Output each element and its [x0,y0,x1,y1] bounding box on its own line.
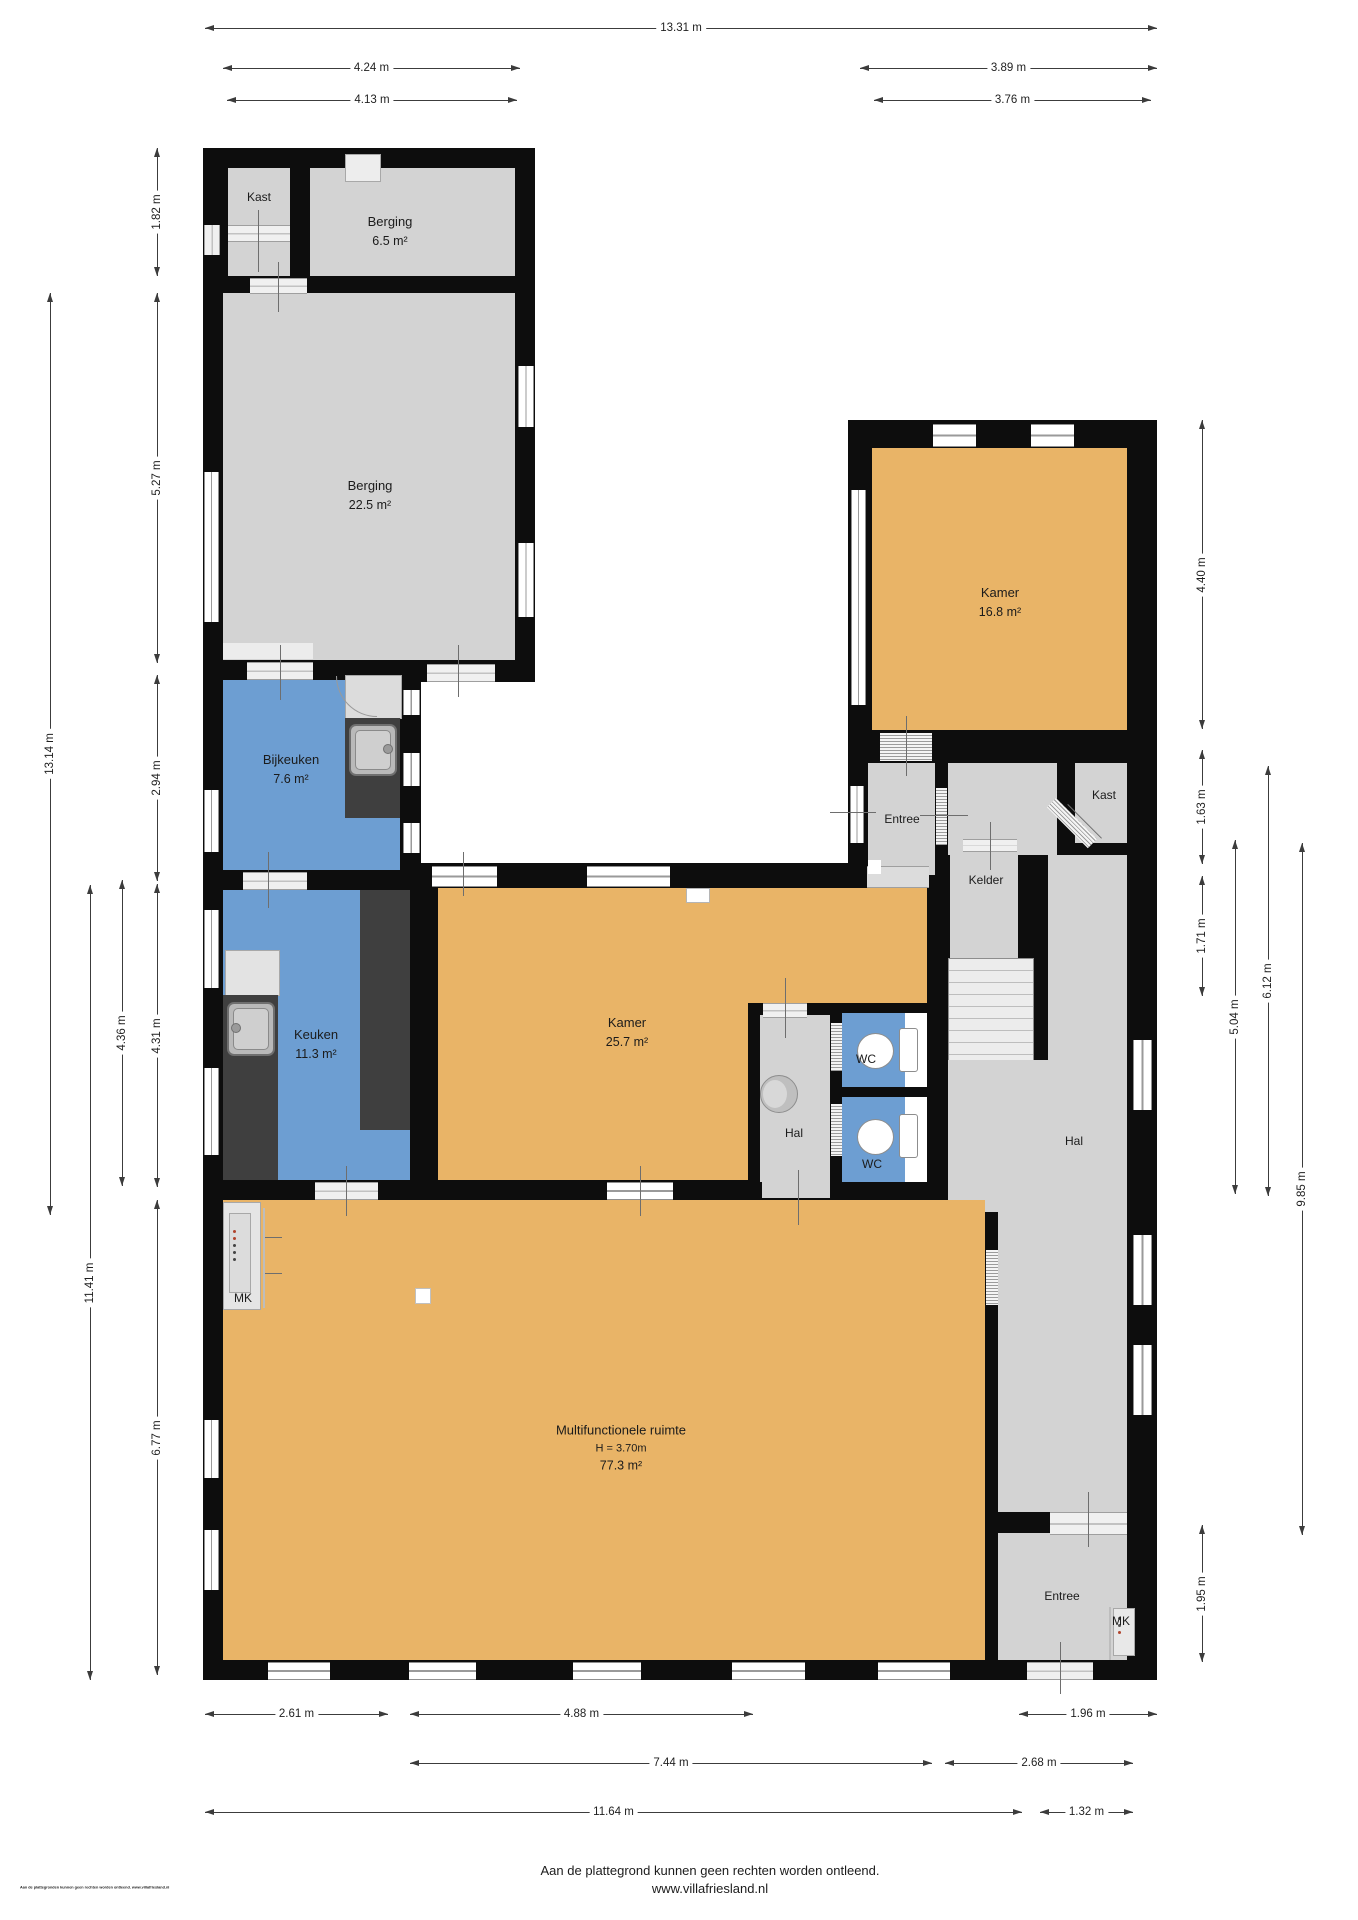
wall-niche [345,154,381,182]
basin-icon [760,1075,798,1113]
toilet-icon [857,1119,894,1155]
appliance-icon [225,950,280,996]
window [204,1068,219,1155]
window-mark [830,812,876,813]
sink-icon [227,1002,275,1056]
window [403,823,420,853]
room-label-kast-topleft: Kast [247,188,271,206]
room-name: Kast [247,190,271,204]
room-label-wc-top: WC [856,1050,876,1068]
door-opening [762,1182,830,1198]
room-area: 25.7 m² [606,1032,648,1051]
room-name: Multifunctionele ruimte [556,1423,686,1438]
toilet-icon [899,1028,918,1072]
room-label-kast-right: Kast [1092,786,1116,804]
dimension-value: 1.71 m [1196,914,1208,957]
room-label-kamer-right: Kamer16.8 m² [979,583,1021,621]
room-label-multi: Multifunctionele ruimteH = 3.70m77.3 m² [556,1421,686,1476]
room-name: Kelder [969,873,1004,887]
toilet-icon [899,1114,918,1158]
room-name: Bijkeuken [263,752,319,767]
dimension-value: 4.40 m [1196,553,1208,596]
door-swing-line [640,1166,641,1216]
footer-line2: www.villafriesland.nl [652,1881,768,1896]
dimension-value: 2.61 m [275,1708,318,1720]
faucet-icon [383,744,393,754]
door-threshold [243,872,307,890]
room-hal-corridor-d [998,1212,1127,1512]
room-name: Keuken [294,1027,338,1042]
room-name: Entree [884,812,919,826]
dimension-value: 6.12 m [1262,959,1274,1002]
door [986,1250,998,1305]
dimension-value: 13.31 m [656,22,706,34]
meter-panel-inner [229,1213,251,1293]
basin-inner [763,1080,787,1108]
room-name: Berging [348,478,393,493]
room-area: 11.3 m² [294,1044,338,1063]
cupboard-mark [265,1237,282,1238]
dimension-value: 1.32 m [1065,1806,1108,1818]
door-swing-line [458,645,459,697]
room-hal-corridor-b [1048,855,1127,1060]
wall-notch [868,860,881,874]
dimension-value: 4.13 m [350,94,393,106]
window [204,472,219,622]
dimension-value: 3.89 m [987,62,1030,74]
room-name: Hal [1065,1134,1083,1148]
door-swing-line [1088,1492,1089,1547]
room-label-wc-bottom: WC [862,1155,882,1173]
dimension-value: 11.41 m [84,1258,96,1307]
cupboard-door-line [263,1208,265,1308]
window [933,424,976,447]
window-mark [463,852,464,896]
window [573,1662,641,1680]
cupboard-door-line [1109,1607,1111,1660]
room-area: 77.3 m² [556,1457,686,1476]
room-name: MK [234,1291,252,1305]
door-swing-line [278,262,279,312]
door-threshold [427,664,495,682]
door-swing-line [990,822,991,870]
room-kelder [950,850,1018,958]
room-kamer-main-upper [438,888,927,1003]
window [587,866,670,887]
window [850,786,864,843]
window [878,1662,950,1680]
room-berging-small [310,168,515,276]
dimension-value: 1.95 m [1196,1572,1208,1615]
room-area: 6.5 m² [368,231,413,250]
room-name: Kamer [608,1015,646,1030]
window [432,866,497,887]
door-swing-line [268,852,269,908]
window [204,1420,219,1478]
room-name: Berging [368,214,413,229]
window [409,1662,476,1680]
door-swing-line [906,716,907,776]
room-name: WC [862,1157,882,1171]
staircase-icon [948,958,1034,1062]
dimension-value: 1.82 m [151,190,163,233]
window [204,1530,219,1590]
dimension-value: 4.36 m [116,1011,128,1054]
dimension-value: 1.96 m [1066,1708,1109,1720]
dimension-value: 5.27 m [151,456,163,499]
door-swing-line [1060,1642,1061,1694]
window [1133,1345,1152,1415]
room-label-entree-bottom: Entree [1044,1587,1079,1605]
meter-dots [233,1226,236,1265]
dimension-value: 3.76 m [991,94,1034,106]
footer-micro: Aan de plattegronden kunnen geen rechten… [20,1885,169,1889]
room-name: Entree [1044,1589,1079,1603]
room-area: 7.6 m² [263,769,319,788]
door [831,1023,842,1071]
window [732,1662,805,1680]
room-label-kamer-main: Kamer25.7 m² [606,1013,648,1051]
window [403,753,420,786]
dimension-value: 7.44 m [649,1757,692,1769]
dimension-value: 9.85 m [1296,1167,1308,1210]
dimension-value: 2.68 m [1017,1757,1060,1769]
faucet-icon [231,1023,241,1033]
room-label-mk-left: MK [234,1289,252,1307]
room-label-berging-large: Berging22.5 m² [348,476,393,514]
dimension-value: 13.14 m [44,729,56,779]
room-label-mk-right: MK [1112,1612,1130,1630]
footer-website: www.villafriesland.nl [652,1881,768,1896]
floor-detail [415,1288,431,1304]
room-name: MK [1112,1614,1130,1628]
dimension-value: 1.63 m [1196,785,1208,828]
door-swing-line [785,978,786,1038]
window [1031,424,1074,447]
footer-line1: Aan de plattegrond kunnen geen rechten w… [541,1863,880,1878]
footer-micro-text: Aan de plattegronden kunnen geen rechten… [20,1885,169,1889]
window [518,366,534,427]
dimension-value: 6.77 m [151,1416,163,1459]
window [1133,1235,1152,1305]
room-label-hal-small: Hal [785,1124,803,1142]
room-name: Kast [1092,788,1116,802]
door-mark [920,815,968,816]
door [831,1104,842,1156]
floor-step [223,643,313,659]
dimension-value: 11.64 m [589,1806,638,1818]
window [851,490,866,705]
room-name: WC [856,1052,876,1066]
floorplan-canvas: Kast Berging6.5 m² Berging22.5 m² Kamer1… [0,0,1358,1920]
window [403,690,420,715]
door-threshold [204,225,220,255]
window [518,543,534,617]
door [936,788,947,845]
room-label-bijkeuken: Bijkeuken7.6 m² [263,750,319,788]
window [1133,1040,1152,1110]
window [268,1662,330,1680]
room-name: Kamer [981,585,1019,600]
dimension-value: 4.31 m [151,1014,163,1057]
room-hal-corridor-c [948,1060,1127,1212]
room-name: Hal [785,1126,803,1140]
room-area: 22.5 m² [348,495,393,514]
door-swing-line [798,1170,799,1225]
dimension-value: 5.04 m [1229,995,1241,1038]
sink-icon [349,724,397,776]
door-swing-line [280,645,281,700]
room-label-kelder: Kelder [969,871,1004,889]
room-label-keuken: Keuken11.3 m² [294,1025,338,1063]
cupboard-mark [265,1273,282,1274]
room-label-entree-top: Entree [884,810,919,828]
window [204,790,219,852]
dimension-value: 4.88 m [560,1708,603,1720]
room-label-hal-corridor: Hal [1065,1132,1083,1150]
footer-disclaimer: Aan de plattegrond kunnen geen rechten w… [541,1863,880,1878]
door-swing-line [258,210,259,272]
chimney [686,888,710,903]
dimension-value: 4.24 m [350,62,393,74]
room-kast-topleft-arm [228,240,290,276]
room-kamer-main-lower [438,1003,748,1180]
cabinet-keuken [360,890,410,1130]
door-swing-line [346,1166,347,1216]
door-threshold [228,225,290,242]
room-area: 16.8 m² [979,602,1021,621]
window [204,910,219,988]
room-label-berging-small: Berging6.5 m² [368,212,413,250]
dimension-value: 2.94 m [151,756,163,799]
room-height: H = 3.70m [556,1440,686,1457]
